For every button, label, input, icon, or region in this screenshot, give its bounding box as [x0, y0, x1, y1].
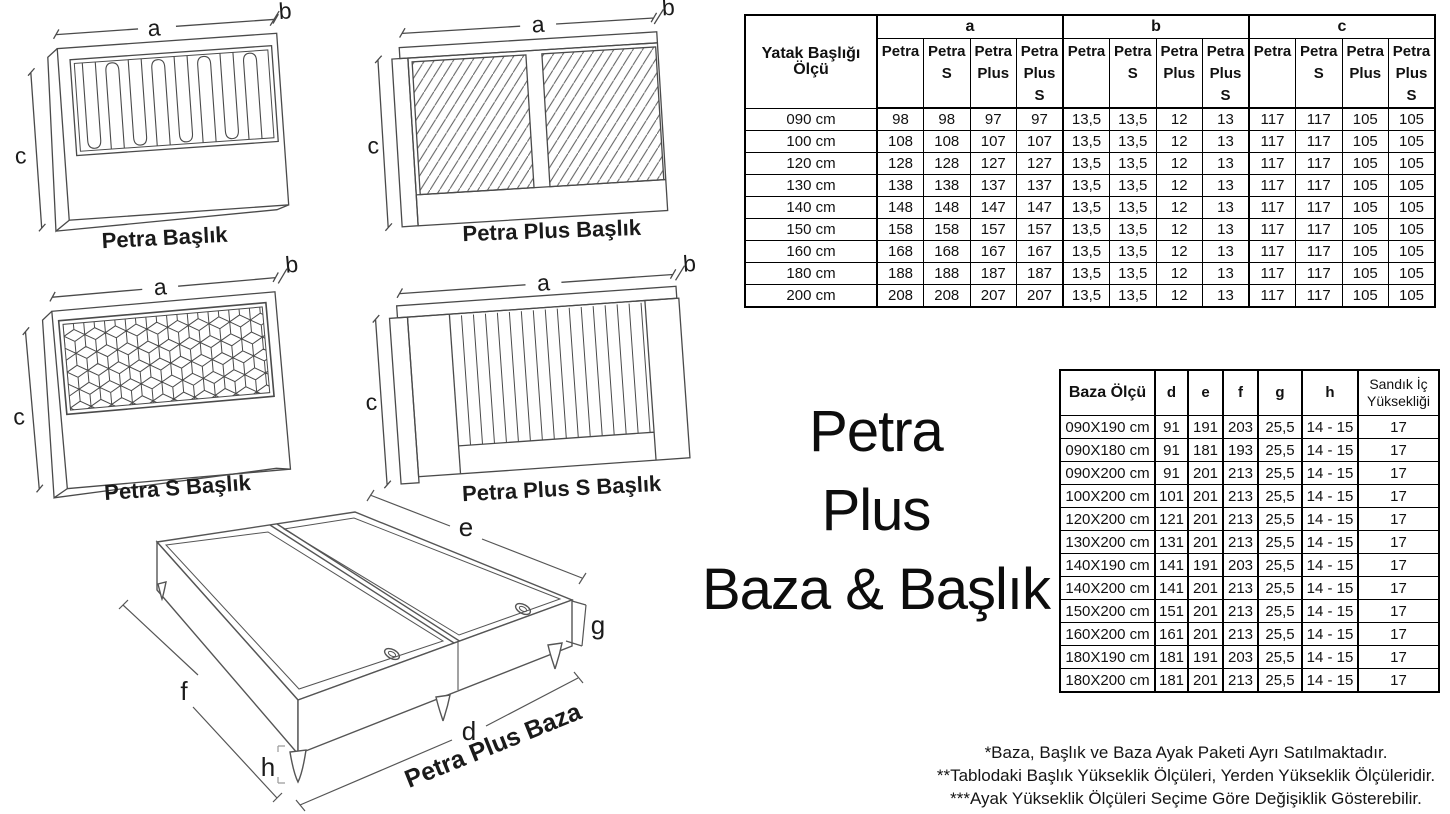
dim-c-label: c	[14, 142, 27, 169]
baza-value-cell: 25,5	[1258, 577, 1302, 600]
baza-size-cell: 090X190 cm	[1060, 416, 1155, 439]
dim-a-label: a	[536, 269, 551, 296]
headboard-left-strip	[390, 317, 420, 484]
subheader-petra-s: Petra S	[1296, 39, 1343, 109]
headboard-value-cell: 117	[1249, 131, 1296, 153]
subheader-petra-plus: Petra Plus	[1342, 39, 1389, 109]
headboard-value-cell: 107	[1017, 131, 1064, 153]
headboard-value-cell: 13,5	[1110, 241, 1157, 263]
headboard-value-cell: 127	[1017, 153, 1064, 175]
headboard-dimensions-table: Yatak Başlığı Ölçü a b c Petra Petra S P…	[744, 14, 1436, 308]
baza-value-cell: 25,5	[1258, 485, 1302, 508]
baza-row: 140X200 cm14120121325,514 - 1517	[1060, 577, 1439, 600]
headboard-value-cell: 13,5	[1063, 263, 1110, 285]
headboard-size-cell: 100 cm	[745, 131, 877, 153]
baza-row: 120X200 cm12120121325,514 - 1517	[1060, 508, 1439, 531]
petra-headboard-svg: a b c Petra Başlık	[5, 8, 305, 253]
baza-value-cell: 25,5	[1258, 508, 1302, 531]
headboard-value-cell: 105	[1342, 285, 1389, 308]
baza-value-cell: 213	[1223, 508, 1258, 531]
petra-plus-headboard-svg: a b c Petra Plus Başlık	[356, 2, 696, 247]
headboard-value-cell: 12	[1156, 175, 1203, 197]
headboard-value-cell: 13	[1203, 285, 1250, 308]
headboard-size-cell: 120 cm	[745, 153, 877, 175]
headboard-value-cell: 13,5	[1063, 285, 1110, 308]
baza-value-cell: 201	[1188, 462, 1223, 485]
headboard-value-cell: 105	[1389, 175, 1436, 197]
headboard-value-cell: 117	[1249, 219, 1296, 241]
subheader-petra-plus-s: Petra Plus S	[1017, 39, 1064, 109]
headboard-value-cell: 148	[877, 197, 924, 219]
headboard-value-cell: 187	[970, 263, 1017, 285]
headboard-corner-header: Yatak Başlığı Ölçü	[745, 15, 877, 108]
petra-plus-caption: Petra Plus Başlık	[462, 215, 642, 246]
headboard-value-cell: 12	[1156, 285, 1203, 308]
headboard-value-cell: 167	[1017, 241, 1064, 263]
headboard-value-cell: 117	[1296, 108, 1343, 131]
subheader-petra-plus-s: Petra Plus S	[1389, 39, 1436, 109]
headboard-value-cell: 168	[924, 241, 971, 263]
headboard-value-cell: 168	[877, 241, 924, 263]
baza-value-cell: 201	[1188, 600, 1223, 623]
spec-sheet-page: a b c Petra Başlık	[0, 0, 1450, 814]
product-title: Petra Plus Baza & Başlık	[676, 392, 1076, 629]
baza-value-cell: 17	[1358, 669, 1439, 693]
cube-pattern	[52, 293, 290, 426]
headboard-size-cell: 160 cm	[745, 241, 877, 263]
baza-dimensions-table: Baza Ölçü d e f g h Sandık İç Yüksekliği…	[1059, 369, 1440, 693]
subheader-petra: Petra	[1063, 39, 1110, 109]
dim-c-line	[22, 327, 43, 492]
baza-header-row: Baza Ölçü d e f g h Sandık İç Yüksekliği	[1060, 370, 1439, 416]
headboard-value-cell: 208	[924, 285, 971, 308]
baza-size-cell: 180X190 cm	[1060, 646, 1155, 669]
baza-value-cell: 25,5	[1258, 439, 1302, 462]
baza-row: 160X200 cm16120121325,514 - 1517	[1060, 623, 1439, 646]
baza-value-cell: 14 - 15	[1302, 416, 1358, 439]
baza-size-cell: 140X190 cm	[1060, 554, 1155, 577]
headboard-table-body: 090 cm9898979713,513,5121311711710510510…	[745, 108, 1435, 307]
baza-table-body: 090X190 cm9119120325,514 - 1517090X180 c…	[1060, 416, 1439, 693]
baza-value-cell: 201	[1188, 577, 1223, 600]
baza-value-cell: 141	[1155, 577, 1188, 600]
baza-value-cell: 17	[1358, 554, 1439, 577]
baza-row: 130X200 cm13120121325,514 - 1517	[1060, 531, 1439, 554]
headboard-value-cell: 188	[877, 263, 924, 285]
headboard-value-cell: 127	[970, 153, 1017, 175]
title-line-2: Plus	[676, 471, 1076, 550]
baza-value-cell: 17	[1358, 577, 1439, 600]
headboard-group-header-row: Yatak Başlığı Ölçü a b c	[745, 15, 1435, 39]
group-header-c: c	[1249, 15, 1435, 39]
headboard-value-cell: 107	[970, 131, 1017, 153]
headboard-value-cell: 12	[1156, 153, 1203, 175]
baza-value-cell: 91	[1155, 462, 1188, 485]
headboard-value-cell: 207	[970, 285, 1017, 308]
baza-size-cell: 130X200 cm	[1060, 531, 1155, 554]
headboard-value-cell: 105	[1342, 241, 1389, 263]
baza-value-cell: 191	[1188, 554, 1223, 577]
headboard-value-cell: 105	[1389, 131, 1436, 153]
headboard-row: 090 cm9898979713,513,51213117117105105	[745, 108, 1435, 131]
headboard-value-cell: 117	[1296, 197, 1343, 219]
baza-value-cell: 14 - 15	[1302, 600, 1358, 623]
headboard-value-cell: 13,5	[1110, 153, 1157, 175]
headboard-value-cell: 13,5	[1110, 285, 1157, 308]
baza-value-cell: 201	[1188, 485, 1223, 508]
cube-panel-outer	[59, 303, 274, 415]
headboard-value-cell: 105	[1342, 197, 1389, 219]
headboard-value-cell: 13,5	[1063, 153, 1110, 175]
baza-value-cell: 14 - 15	[1302, 462, 1358, 485]
baza-value-cell: 161	[1155, 623, 1188, 646]
petra-s-headboard-drawing: a b c Petra S Başlık	[0, 263, 312, 503]
headboard-value-cell: 117	[1249, 153, 1296, 175]
baza-value-cell: 181	[1155, 669, 1188, 693]
slat-lines	[461, 303, 650, 445]
headboard-value-cell: 105	[1389, 285, 1436, 308]
subheader-petra: Petra	[1249, 39, 1296, 109]
headboard-value-cell: 13	[1203, 241, 1250, 263]
baza-size-cell: 100X200 cm	[1060, 485, 1155, 508]
baza-value-cell: 181	[1155, 646, 1188, 669]
baza-row: 090X200 cm9120121325,514 - 1517	[1060, 462, 1439, 485]
baza-value-cell: 25,5	[1258, 669, 1302, 693]
headboard-value-cell: 12	[1156, 131, 1203, 153]
headboard-value-cell: 12	[1156, 241, 1203, 263]
petra-caption: Petra Başlık	[101, 222, 229, 254]
baza-value-cell: 213	[1223, 485, 1258, 508]
group-header-b: b	[1063, 15, 1249, 39]
dim-c-label: c	[367, 132, 380, 159]
baza-row: 140X190 cm14119120325,514 - 1517	[1060, 554, 1439, 577]
headboard-row: 130 cm13813813713713,513,512131171171051…	[745, 175, 1435, 197]
baza-value-cell: 201	[1188, 531, 1223, 554]
baza-value-cell: 17	[1358, 439, 1439, 462]
headboard-value-cell: 117	[1296, 285, 1343, 308]
hatch-panel-right	[542, 47, 664, 187]
baza-value-cell: 14 - 15	[1302, 508, 1358, 531]
baza-value-cell: 203	[1223, 416, 1258, 439]
baza-value-cell: 201	[1188, 623, 1223, 646]
slat-zone-border	[449, 301, 656, 474]
baza-value-cell: 14 - 15	[1302, 669, 1358, 693]
baza-value-cell: 25,5	[1258, 646, 1302, 669]
baza-value-cell: 25,5	[1258, 416, 1302, 439]
baza-size-cell: 090X200 cm	[1060, 462, 1155, 485]
headboard-value-cell: 12	[1156, 219, 1203, 241]
headboard-value-cell: 13	[1203, 197, 1250, 219]
headboard-value-cell: 108	[877, 131, 924, 153]
headboard-value-cell: 108	[924, 131, 971, 153]
baza-value-cell: 151	[1155, 600, 1188, 623]
dim-b-label: b	[284, 251, 299, 278]
headboard-value-cell: 105	[1342, 263, 1389, 285]
baza-value-cell: 14 - 15	[1302, 554, 1358, 577]
headboard-size-cell: 150 cm	[745, 219, 877, 241]
dim-h-label: h	[261, 752, 275, 782]
baza-value-cell: 25,5	[1258, 600, 1302, 623]
headboard-value-cell: 98	[877, 108, 924, 131]
baza-value-cell: 25,5	[1258, 462, 1302, 485]
headboard-value-cell: 13,5	[1063, 241, 1110, 263]
baza-row: 090X180 cm9118119325,514 - 1517	[1060, 439, 1439, 462]
hatch-panel-left	[412, 55, 534, 195]
baza-row: 150X200 cm15120121325,514 - 1517	[1060, 600, 1439, 623]
headboard-value-cell: 147	[970, 197, 1017, 219]
baza-value-cell: 213	[1223, 462, 1258, 485]
headboard-value-cell: 158	[924, 219, 971, 241]
baza-value-cell: 17	[1358, 508, 1439, 531]
subheader-petra-plus: Petra Plus	[1156, 39, 1203, 109]
headboard-value-cell: 13,5	[1063, 131, 1110, 153]
baza-value-cell: 14 - 15	[1302, 646, 1358, 669]
headboard-value-cell: 13,5	[1063, 108, 1110, 131]
baza-size-cell: 150X200 cm	[1060, 600, 1155, 623]
headboard-size-cell: 180 cm	[745, 263, 877, 285]
baza-header-e: e	[1188, 370, 1223, 416]
baza-value-cell: 101	[1155, 485, 1188, 508]
headboard-value-cell: 137	[1017, 175, 1064, 197]
headboard-row: 160 cm16816816716713,513,512131171171051…	[745, 241, 1435, 263]
baza-value-cell: 91	[1155, 439, 1188, 462]
petra-plus-baza-svg: e g f d h Petra Plus Baza	[108, 478, 620, 814]
baza-value-cell: 121	[1155, 508, 1188, 531]
headboard-value-cell: 117	[1296, 219, 1343, 241]
baza-leg-near	[290, 750, 306, 782]
headboard-value-cell: 117	[1296, 131, 1343, 153]
dim-a-label: a	[147, 14, 162, 41]
dim-a-label: a	[531, 11, 546, 38]
petra-plus-s-headboard-drawing: a b c Petra Plus S Başlık	[356, 263, 704, 503]
baza-value-cell: 91	[1155, 416, 1188, 439]
headboard-row: 150 cm15815815715713,513,512131171171051…	[745, 219, 1435, 241]
baza-value-cell: 17	[1358, 646, 1439, 669]
baza-value-cell: 203	[1223, 554, 1258, 577]
headboard-value-cell: 105	[1342, 153, 1389, 175]
headboard-size-cell: 090 cm	[745, 108, 877, 131]
baza-header-d: d	[1155, 370, 1188, 416]
baza-value-cell: 141	[1155, 554, 1188, 577]
headboard-value-cell: 105	[1389, 108, 1436, 131]
subheader-petra-s: Petra S	[1110, 39, 1157, 109]
headboard-value-cell: 117	[1296, 263, 1343, 285]
petra-plus-s-headboard-svg: a b c Petra Plus S Başlık	[356, 263, 704, 503]
headboard-value-cell: 13,5	[1063, 175, 1110, 197]
baza-value-cell: 213	[1223, 600, 1258, 623]
dim-b-label: b	[278, 0, 293, 24]
baza-row: 100X200 cm10120121325,514 - 1517	[1060, 485, 1439, 508]
headboard-value-cell: 13	[1203, 108, 1250, 131]
subheader-petra-plus-s: Petra Plus S	[1203, 39, 1250, 109]
headboard-size-cell: 140 cm	[745, 197, 877, 219]
headboard-row: 120 cm12812812712713,513,512131171171051…	[745, 153, 1435, 175]
baza-size-cell: 120X200 cm	[1060, 508, 1155, 531]
stitch-channels	[82, 51, 262, 151]
headboard-value-cell: 105	[1389, 263, 1436, 285]
baza-row: 180X190 cm18119120325,514 - 1517	[1060, 646, 1439, 669]
subheader-petra: Petra	[877, 39, 924, 109]
headboard-value-cell: 157	[1017, 219, 1064, 241]
baza-header-f: f	[1223, 370, 1258, 416]
headboard-value-cell: 13	[1203, 263, 1250, 285]
headboard-row: 100 cm10810810710713,513,512131171171051…	[745, 131, 1435, 153]
headboard-value-cell: 138	[924, 175, 971, 197]
title-line-1: Petra	[676, 392, 1076, 471]
headboard-value-cell: 105	[1342, 175, 1389, 197]
headboard-size-cell: 200 cm	[745, 285, 877, 308]
headboard-value-cell: 105	[1389, 197, 1436, 219]
baza-value-cell: 14 - 15	[1302, 623, 1358, 646]
baza-value-cell: 191	[1188, 416, 1223, 439]
headboard-value-cell: 158	[877, 219, 924, 241]
petra-headboard-drawing: a b c Petra Başlık	[5, 8, 305, 253]
baza-size-cell: 090X180 cm	[1060, 439, 1155, 462]
headboard-value-cell: 12	[1156, 263, 1203, 285]
headboard-value-cell: 138	[877, 175, 924, 197]
baza-value-cell: 14 - 15	[1302, 577, 1358, 600]
headboard-value-cell: 117	[1296, 175, 1343, 197]
headboard-value-cell: 157	[970, 219, 1017, 241]
headboard-value-cell: 117	[1296, 153, 1343, 175]
headboard-row: 140 cm14814814714713,513,512131171171051…	[745, 197, 1435, 219]
baza-leg-right	[548, 643, 562, 669]
footnotes: *Baza, Başlık ve Baza Ayak Paketi Ayrı S…	[930, 741, 1442, 810]
headboard-value-cell: 97	[970, 108, 1017, 131]
baza-leg-mid	[436, 695, 450, 721]
headboard-value-cell: 105	[1342, 108, 1389, 131]
headboard-value-cell: 13,5	[1063, 219, 1110, 241]
baza-value-cell: 191	[1188, 646, 1223, 669]
headboard-outline	[52, 292, 291, 489]
headboard-value-cell: 13,5	[1110, 108, 1157, 131]
baza-top-face	[157, 512, 572, 700]
headboard-value-cell: 12	[1156, 108, 1203, 131]
headboard-value-cell: 105	[1342, 219, 1389, 241]
headboard-value-cell: 105	[1342, 131, 1389, 153]
baza-value-cell: 14 - 15	[1302, 531, 1358, 554]
baza-value-cell: 17	[1358, 416, 1439, 439]
baza-row: 090X190 cm9119120325,514 - 1517	[1060, 416, 1439, 439]
headboard-value-cell: 117	[1249, 175, 1296, 197]
dim-e-label: e	[459, 512, 473, 542]
baza-value-cell: 14 - 15	[1302, 485, 1358, 508]
headboard-value-cell: 13,5	[1110, 197, 1157, 219]
plain-left-panel	[449, 314, 460, 474]
headboard-value-cell: 105	[1389, 219, 1436, 241]
headboard-value-cell: 207	[1017, 285, 1064, 308]
headboard-value-cell: 13,5	[1110, 219, 1157, 241]
baza-value-cell: 17	[1358, 485, 1439, 508]
headboard-value-cell: 97	[1017, 108, 1064, 131]
headboard-value-cell: 137	[970, 175, 1017, 197]
dim-c-line	[28, 68, 46, 231]
dim-b-label: b	[682, 250, 697, 277]
group-header-a: a	[877, 15, 1063, 39]
baza-value-cell: 213	[1223, 669, 1258, 693]
baza-value-cell: 14 - 15	[1302, 439, 1358, 462]
note-line-2: **Tablodaki Başlık Yükseklik Ölçüleri, Y…	[930, 764, 1442, 787]
petra-plus-baza-caption: Petra Plus Baza	[401, 697, 586, 794]
headboard-value-cell: 13	[1203, 153, 1250, 175]
headboard-value-cell: 128	[877, 153, 924, 175]
baza-header-h: h	[1302, 370, 1358, 416]
headboard-value-cell: 13,5	[1110, 175, 1157, 197]
baza-corner-header: Baza Ölçü	[1060, 370, 1155, 416]
headboard-value-cell: 12	[1156, 197, 1203, 219]
headboard-size-cell: 130 cm	[745, 175, 877, 197]
baza-value-cell: 17	[1358, 531, 1439, 554]
dim-c-label: c	[12, 403, 26, 430]
note-line-3: ***Ayak Yükseklik Ölçüleri Seçime Göre D…	[930, 787, 1442, 810]
headboard-value-cell: 117	[1249, 263, 1296, 285]
baza-value-cell: 17	[1358, 462, 1439, 485]
headboard-value-cell: 13,5	[1063, 197, 1110, 219]
baza-size-cell: 140X200 cm	[1060, 577, 1155, 600]
petra-s-headboard-svg: a b c Petra S Başlık	[0, 263, 312, 503]
headboard-value-cell: 167	[970, 241, 1017, 263]
headboard-value-cell: 188	[924, 263, 971, 285]
baza-value-cell: 25,5	[1258, 531, 1302, 554]
headboard-value-cell: 128	[924, 153, 971, 175]
petra-plus-headboard-drawing: a b c Petra Plus Başlık	[356, 2, 696, 247]
headboard-value-cell: 13,5	[1110, 131, 1157, 153]
baza-value-cell: 17	[1358, 600, 1439, 623]
headboard-value-cell: 105	[1389, 241, 1436, 263]
headboard-value-cell: 13,5	[1110, 263, 1157, 285]
headboard-value-cell: 13	[1203, 175, 1250, 197]
headboard-value-cell: 117	[1296, 241, 1343, 263]
headboard-value-cell: 147	[1017, 197, 1064, 219]
dim-h-bracket	[278, 746, 285, 783]
headboard-value-cell: 148	[924, 197, 971, 219]
baza-value-cell: 203	[1223, 646, 1258, 669]
baza-value-cell: 213	[1223, 531, 1258, 554]
dim-a-label: a	[153, 273, 168, 300]
headboard-row: 180 cm18818818718713,513,512131171171051…	[745, 263, 1435, 285]
baza-value-cell: 193	[1223, 439, 1258, 462]
baza-header-sandik: Sandık İç Yüksekliği	[1358, 370, 1439, 416]
headboard-value-cell: 105	[1389, 153, 1436, 175]
baza-row: 180X200 cm18120121325,514 - 1517	[1060, 669, 1439, 693]
headboard-value-cell: 98	[924, 108, 971, 131]
dim-c-label: c	[365, 388, 378, 415]
headboard-value-cell: 117	[1249, 108, 1296, 131]
baza-value-cell: 201	[1188, 669, 1223, 693]
subheader-petra-s: Petra S	[924, 39, 971, 109]
headboard-value-cell: 187	[1017, 263, 1064, 285]
baza-header-g: g	[1258, 370, 1302, 416]
subheader-petra-plus: Petra Plus	[970, 39, 1017, 109]
baza-value-cell: 213	[1223, 577, 1258, 600]
baza-value-cell: 181	[1188, 439, 1223, 462]
note-line-1: *Baza, Başlık ve Baza Ayak Paketi Ayrı S…	[930, 741, 1442, 764]
baza-value-cell: 213	[1223, 623, 1258, 646]
baza-value-cell: 131	[1155, 531, 1188, 554]
dim-g-label: g	[591, 610, 605, 640]
headboard-value-cell: 117	[1249, 241, 1296, 263]
dim-b-label: b	[661, 0, 675, 20]
baza-size-cell: 180X200 cm	[1060, 669, 1155, 693]
baza-size-cell: 160X200 cm	[1060, 623, 1155, 646]
petra-plus-baza-drawing: e g f d h Petra Plus Baza	[108, 478, 620, 814]
headboard-value-cell: 208	[877, 285, 924, 308]
baza-value-cell: 201	[1188, 508, 1223, 531]
headboard-value-cell: 13	[1203, 219, 1250, 241]
headboard-outline	[57, 33, 288, 220]
baza-value-cell: 25,5	[1258, 554, 1302, 577]
headboard-value-cell: 117	[1249, 197, 1296, 219]
